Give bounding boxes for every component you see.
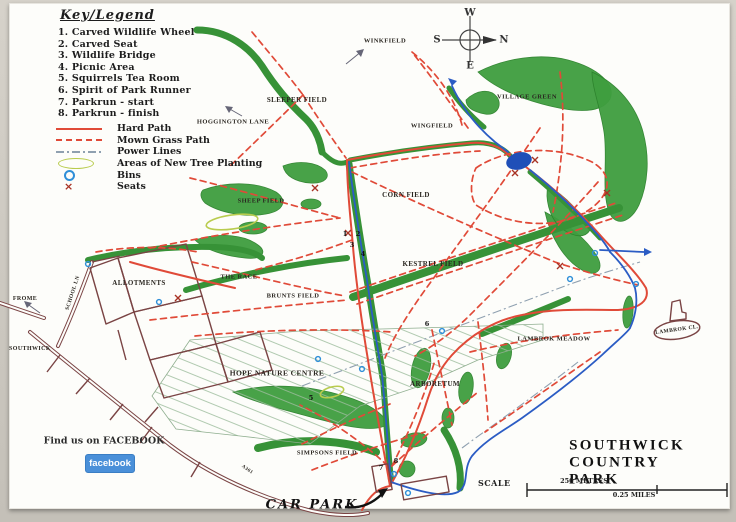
- seat-marker: [175, 295, 181, 301]
- compass-south-label: S: [433, 35, 440, 46]
- legend-label: Seats: [117, 181, 146, 192]
- hard-path-swatch-icon: [56, 128, 104, 130]
- compass-north-arrow: [483, 36, 497, 44]
- seat-swatch-icon: ×: [56, 180, 104, 193]
- legend-row: × Seats: [56, 181, 262, 193]
- bin-marker: [568, 277, 573, 282]
- stream-flow-arrow: [644, 248, 652, 256]
- tree-planting-swatch-icon: [56, 158, 104, 169]
- field-label-the-race: THE RACE: [221, 274, 258, 281]
- facebook-prompt: Find us on FACEBOOK: [44, 436, 165, 447]
- field-label-kestrel-field: KESTREL FIELD: [402, 260, 463, 268]
- key-item-list: 1. Carved Wildlife Wheel 2. Carved Seat …: [58, 27, 273, 120]
- feature-marker-3: 3: [350, 241, 355, 249]
- field-label-frome: FROME: [13, 296, 37, 302]
- path-legend: Hard Path Mown Grass Path Power Lines Ar…: [56, 123, 262, 193]
- scale-miles-label: 0.25 MILES: [613, 491, 656, 499]
- mown-grass-path-swatch-icon: [56, 139, 104, 141]
- lambrok-close-outline: [653, 300, 701, 342]
- field-label-southwick: SOUTHWICK: [9, 346, 51, 352]
- feature-marker-6: 6: [425, 320, 430, 328]
- key-item: 6. Spirit of Park Runner: [58, 85, 273, 97]
- seat-marker: [532, 157, 538, 163]
- field-label-winkfield: WINKFIELD: [364, 38, 406, 45]
- key-item: 4. Picnic Area: [58, 62, 273, 74]
- field-label-wingfield: WINGFIELD: [411, 123, 453, 130]
- key-item: 5. Squirrels Tea Room: [58, 73, 273, 85]
- bin-marker: [406, 491, 411, 496]
- car-park-structures: [345, 464, 449, 508]
- field-label-allotments: ALLOTMENTS: [112, 279, 165, 287]
- key-legend-title: Key/Legend: [60, 8, 273, 23]
- feature-marker-1: 1: [343, 230, 348, 238]
- legend-label: Power Lines: [117, 146, 181, 157]
- scanned-map-photo: Key/Legend 1. Carved Wildlife Wheel 2. C…: [0, 0, 736, 522]
- compass-east-label: E: [466, 61, 474, 72]
- field-label-simpsons-field: SIMPSONS FIELD: [297, 450, 357, 457]
- field-label-hope-nature-centre: HOPE NATURE CENTRE: [230, 369, 325, 378]
- field-label-sheep-field: SHEEP FIELD: [238, 198, 285, 205]
- compass-west-label: W: [464, 8, 475, 19]
- legend-row: Bins: [56, 169, 262, 181]
- stream-flow-arrow: [448, 78, 457, 86]
- power-lines-swatch-icon: [56, 151, 104, 153]
- compass-rose: [442, 16, 497, 62]
- legend-label: Mown Grass Path: [117, 135, 210, 146]
- scale-metres-label: 250 METRES: [560, 477, 608, 485]
- field-label-brunts-field: BRUNTS FIELD: [267, 293, 320, 300]
- feature-marker-8: 8: [394, 457, 399, 465]
- field-label-hoggington-lane: HOGGINGTON LANE: [197, 119, 269, 126]
- legend-row: Areas of New Tree Planting: [56, 158, 262, 170]
- legend-label: Bins: [117, 170, 141, 181]
- key-item: 1. Carved Wildlife Wheel: [58, 27, 273, 39]
- field-label-sleeper-field: SLEEPER FIELD: [267, 96, 327, 104]
- bin-swatch-icon: [56, 170, 104, 181]
- seat-marker: [512, 170, 518, 176]
- field-label-corn-field: CORN FIELD: [382, 191, 430, 199]
- key-item: 3. Wildlife Bridge: [58, 50, 273, 62]
- feature-marker-2: 2: [356, 230, 361, 238]
- feature-marker-5: 5: [309, 394, 314, 402]
- legend-row: Mown Grass Path: [56, 135, 262, 147]
- legend-label: Hard Path: [117, 123, 171, 134]
- scale-label: SCALE: [478, 478, 511, 488]
- compass-north-label: N: [499, 35, 508, 46]
- feature-marker-7: 7: [379, 464, 384, 472]
- legend-row: Power Lines: [56, 146, 262, 158]
- key-item: 2. Carved Seat: [58, 39, 273, 51]
- facebook-button[interactable]: facebook: [85, 454, 135, 473]
- key-legend-block: Key/Legend 1. Carved Wildlife Wheel 2. C…: [58, 8, 273, 120]
- feature-marker-4: 4: [361, 250, 366, 258]
- field-label-arboretum: ARBORETUM: [410, 380, 460, 388]
- field-label-lambrok-meadow: LAMBROK MEADOW: [518, 336, 591, 343]
- car-park-label: CAR PARK: [266, 498, 359, 513]
- field-label-village-green: VILLAGE GREEN: [497, 94, 557, 101]
- bin-marker: [157, 300, 162, 305]
- legend-label: Areas of New Tree Planting: [117, 158, 262, 169]
- seat-marker: [312, 185, 318, 191]
- seat-marker: [557, 263, 563, 269]
- key-item: 7. Parkrun - start: [58, 97, 273, 109]
